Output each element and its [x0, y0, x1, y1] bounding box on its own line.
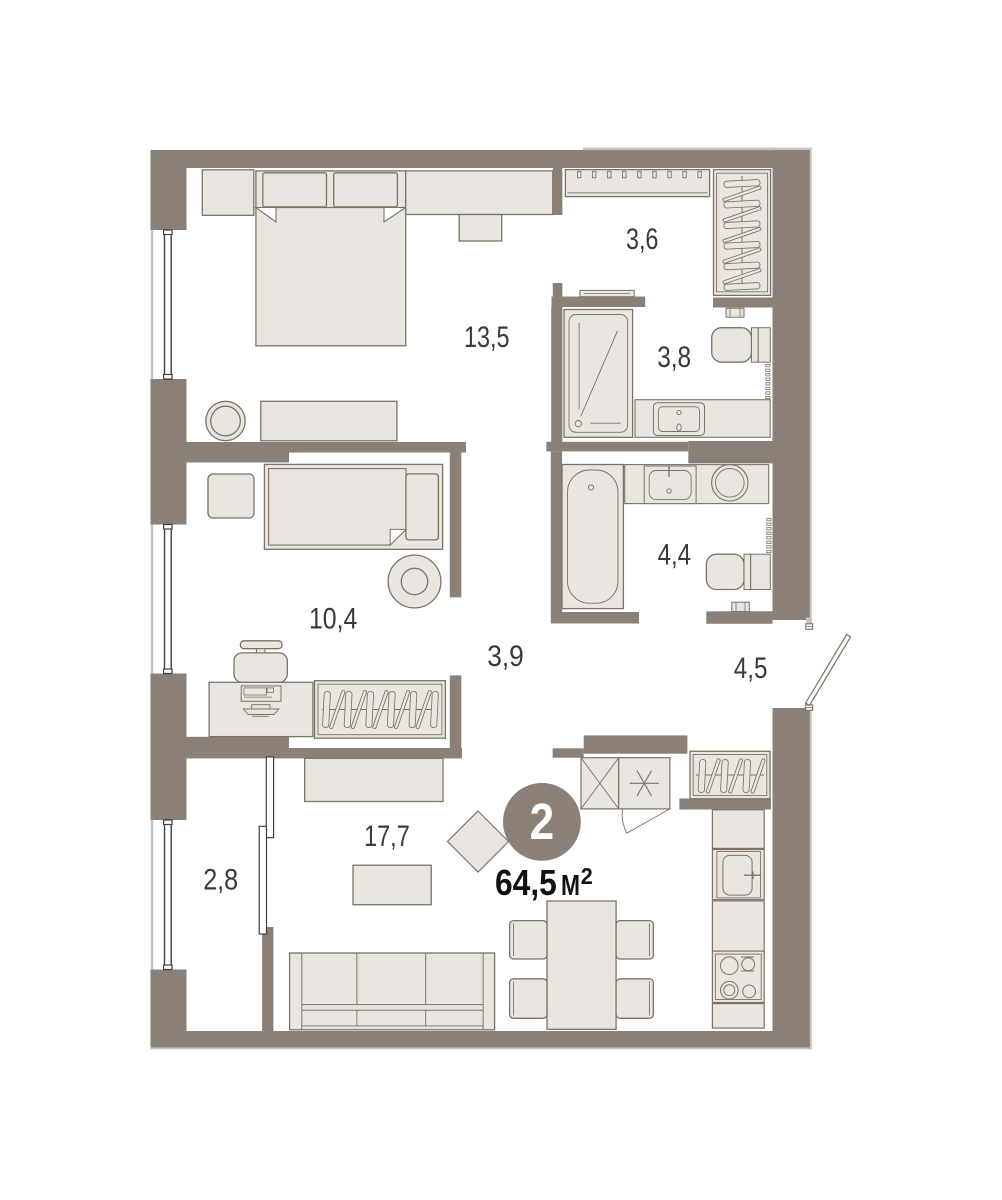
svg-text:10,4: 10,4 [309, 603, 357, 636]
svg-text:64,5: 64,5 [495, 862, 557, 903]
svg-text:17,7: 17,7 [364, 820, 410, 853]
svg-text:3,6: 3,6 [626, 223, 658, 256]
svg-text:4,4: 4,4 [658, 539, 692, 572]
svg-text:3,8: 3,8 [657, 341, 691, 374]
svg-text:4,5: 4,5 [734, 652, 768, 685]
svg-text:2: 2 [581, 863, 593, 889]
svg-text:13,5: 13,5 [464, 321, 510, 354]
svg-text:3,9: 3,9 [487, 640, 524, 673]
svg-text:М: М [561, 870, 580, 902]
svg-text:2,8: 2,8 [203, 864, 238, 897]
svg-text:2: 2 [530, 793, 555, 850]
